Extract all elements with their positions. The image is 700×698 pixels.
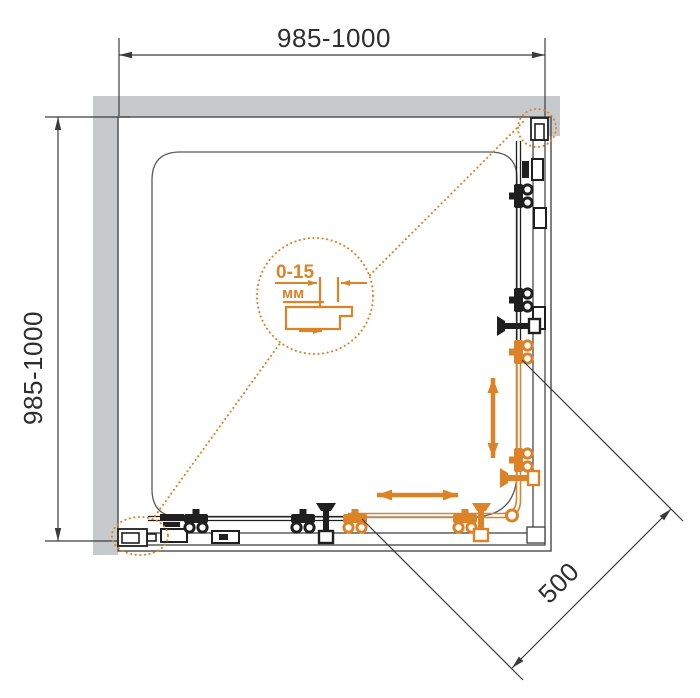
door-roller-icon (291, 509, 315, 532)
door-roller-icon (184, 509, 208, 532)
clamp-bracket (532, 159, 543, 180)
wall-profile-bottom-left (118, 529, 156, 546)
drawing-canvas: 985-1000 985-1000 (0, 0, 700, 698)
clamp-bracket (161, 529, 187, 542)
diagonal-dimension-label: 500 (532, 556, 585, 609)
enclosure-frame (118, 117, 551, 551)
door-handle-bottom-icon (316, 503, 336, 543)
door-roller-icon (509, 288, 532, 312)
door-roller-icon (509, 184, 532, 208)
roller-bracket (522, 161, 529, 178)
door-handle-right-icon (497, 316, 540, 336)
adjustment-detail: 0-15 мм (275, 262, 367, 331)
shower-tray-outline (152, 152, 517, 517)
adjustment-unit-label: мм (282, 285, 304, 302)
corner-joint-icon (507, 510, 518, 521)
enclosure-plan-svg: 985-1000 985-1000 (0, 0, 700, 698)
top-dimension-label: 985-1000 (277, 23, 391, 53)
detail-leader-lower (155, 342, 281, 516)
clamp-bracket (534, 208, 546, 228)
wall-top (93, 96, 560, 136)
adjustment-range-label: 0-15 (276, 262, 314, 283)
detail-leader-upper (370, 121, 524, 275)
fixed-panel-bottom (148, 503, 345, 543)
door-roller-icon (509, 340, 532, 364)
top-width-dimension: 985-1000 (119, 23, 545, 141)
fixed-panel-right (497, 141, 546, 348)
detail-circle (257, 238, 373, 354)
corner-post-block (527, 527, 545, 543)
roller-bracket (160, 514, 184, 520)
wall-left (93, 96, 118, 555)
wall-profile-top-right (531, 118, 548, 140)
left-dimension-label: 985-1000 (18, 311, 48, 425)
door-roller-icon (509, 448, 532, 472)
diagonal-entry-dimension: 500 (362, 360, 683, 680)
